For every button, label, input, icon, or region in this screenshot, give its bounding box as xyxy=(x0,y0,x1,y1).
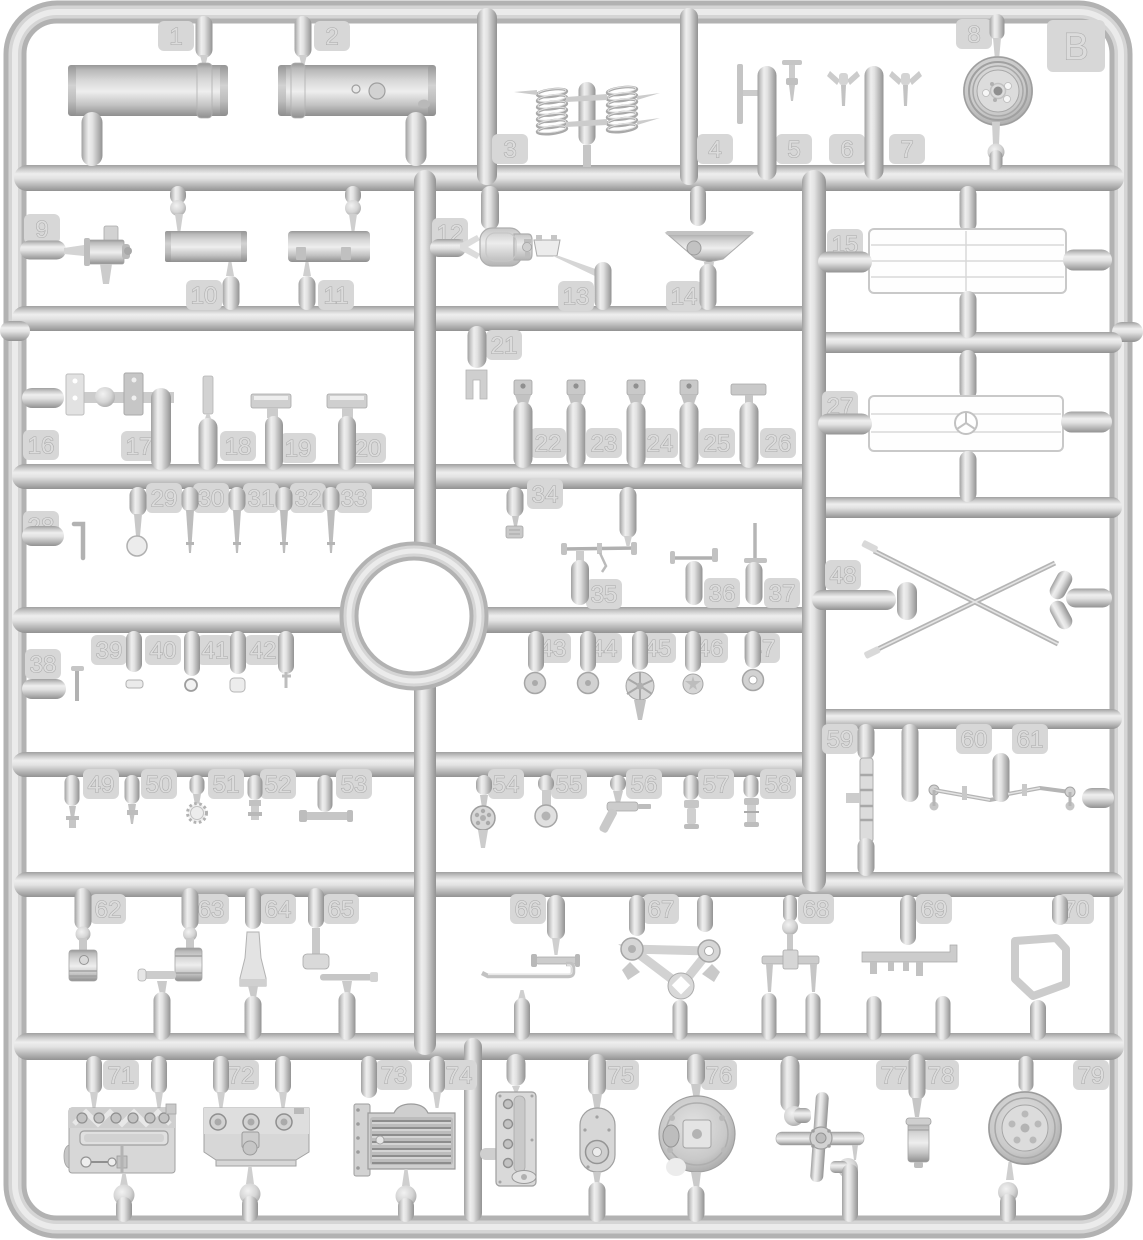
svg-text:71: 71 xyxy=(108,1063,135,1090)
svg-text:34: 34 xyxy=(532,482,559,509)
svg-text:57: 57 xyxy=(703,772,730,799)
svg-text:37: 37 xyxy=(769,581,796,608)
svg-text:35: 35 xyxy=(591,582,618,609)
svg-text:8: 8 xyxy=(967,22,980,49)
svg-text:67: 67 xyxy=(648,897,675,924)
svg-text:32: 32 xyxy=(295,486,322,513)
svg-text:78: 78 xyxy=(928,1063,955,1090)
svg-text:19: 19 xyxy=(285,436,312,463)
svg-text:5: 5 xyxy=(787,137,800,164)
svg-text:1: 1 xyxy=(169,24,182,51)
svg-text:51: 51 xyxy=(213,772,240,799)
svg-text:63: 63 xyxy=(198,897,225,924)
svg-text:58: 58 xyxy=(765,772,792,799)
svg-text:B: B xyxy=(1063,27,1088,69)
svg-text:16: 16 xyxy=(28,433,55,460)
svg-text:64: 64 xyxy=(265,897,292,924)
svg-text:73: 73 xyxy=(381,1063,408,1090)
svg-text:42: 42 xyxy=(250,638,277,665)
svg-text:41: 41 xyxy=(202,638,229,665)
svg-text:75: 75 xyxy=(608,1063,635,1090)
svg-text:21: 21 xyxy=(491,333,518,360)
svg-text:53: 53 xyxy=(341,772,368,799)
svg-text:52: 52 xyxy=(265,772,292,799)
svg-text:13: 13 xyxy=(563,284,590,311)
svg-text:23: 23 xyxy=(591,431,618,458)
svg-text:6: 6 xyxy=(840,137,853,164)
svg-text:30: 30 xyxy=(198,486,225,513)
svg-text:33: 33 xyxy=(341,486,368,513)
svg-text:31: 31 xyxy=(248,486,275,513)
svg-text:79: 79 xyxy=(1078,1063,1105,1090)
svg-text:62: 62 xyxy=(95,897,122,924)
svg-text:36: 36 xyxy=(709,581,736,608)
svg-text:22: 22 xyxy=(535,431,562,458)
svg-text:74: 74 xyxy=(446,1063,473,1090)
svg-text:77: 77 xyxy=(881,1063,908,1090)
svg-text:66: 66 xyxy=(515,897,542,924)
svg-text:3: 3 xyxy=(503,137,516,164)
svg-text:24: 24 xyxy=(647,431,674,458)
svg-text:50: 50 xyxy=(146,772,173,799)
svg-text:40: 40 xyxy=(150,638,177,665)
svg-text:2: 2 xyxy=(325,24,338,51)
svg-text:76: 76 xyxy=(706,1063,733,1090)
svg-text:56: 56 xyxy=(631,772,658,799)
svg-text:69: 69 xyxy=(921,897,948,924)
svg-text:26: 26 xyxy=(765,431,792,458)
svg-text:4: 4 xyxy=(708,137,721,164)
svg-text:55: 55 xyxy=(556,772,583,799)
svg-text:17: 17 xyxy=(126,434,153,461)
svg-text:10: 10 xyxy=(191,283,218,310)
svg-text:11: 11 xyxy=(324,283,349,310)
svg-text:39: 39 xyxy=(96,638,123,665)
svg-text:54: 54 xyxy=(493,772,520,799)
svg-text:20: 20 xyxy=(355,436,382,463)
svg-text:60: 60 xyxy=(961,727,988,754)
svg-text:61: 61 xyxy=(1017,727,1044,754)
svg-text:7: 7 xyxy=(900,137,913,164)
svg-text:9: 9 xyxy=(35,217,48,244)
svg-text:38: 38 xyxy=(30,652,57,679)
svg-text:72: 72 xyxy=(228,1063,255,1090)
svg-text:48: 48 xyxy=(830,563,857,590)
svg-text:25: 25 xyxy=(704,431,731,458)
svg-text:45: 45 xyxy=(645,636,672,663)
svg-text:49: 49 xyxy=(88,772,115,799)
svg-text:18: 18 xyxy=(225,434,252,461)
svg-text:14: 14 xyxy=(671,284,698,311)
svg-text:29: 29 xyxy=(151,486,178,513)
svg-text:65: 65 xyxy=(328,897,355,924)
svg-text:59: 59 xyxy=(827,727,854,754)
svg-text:68: 68 xyxy=(803,897,830,924)
